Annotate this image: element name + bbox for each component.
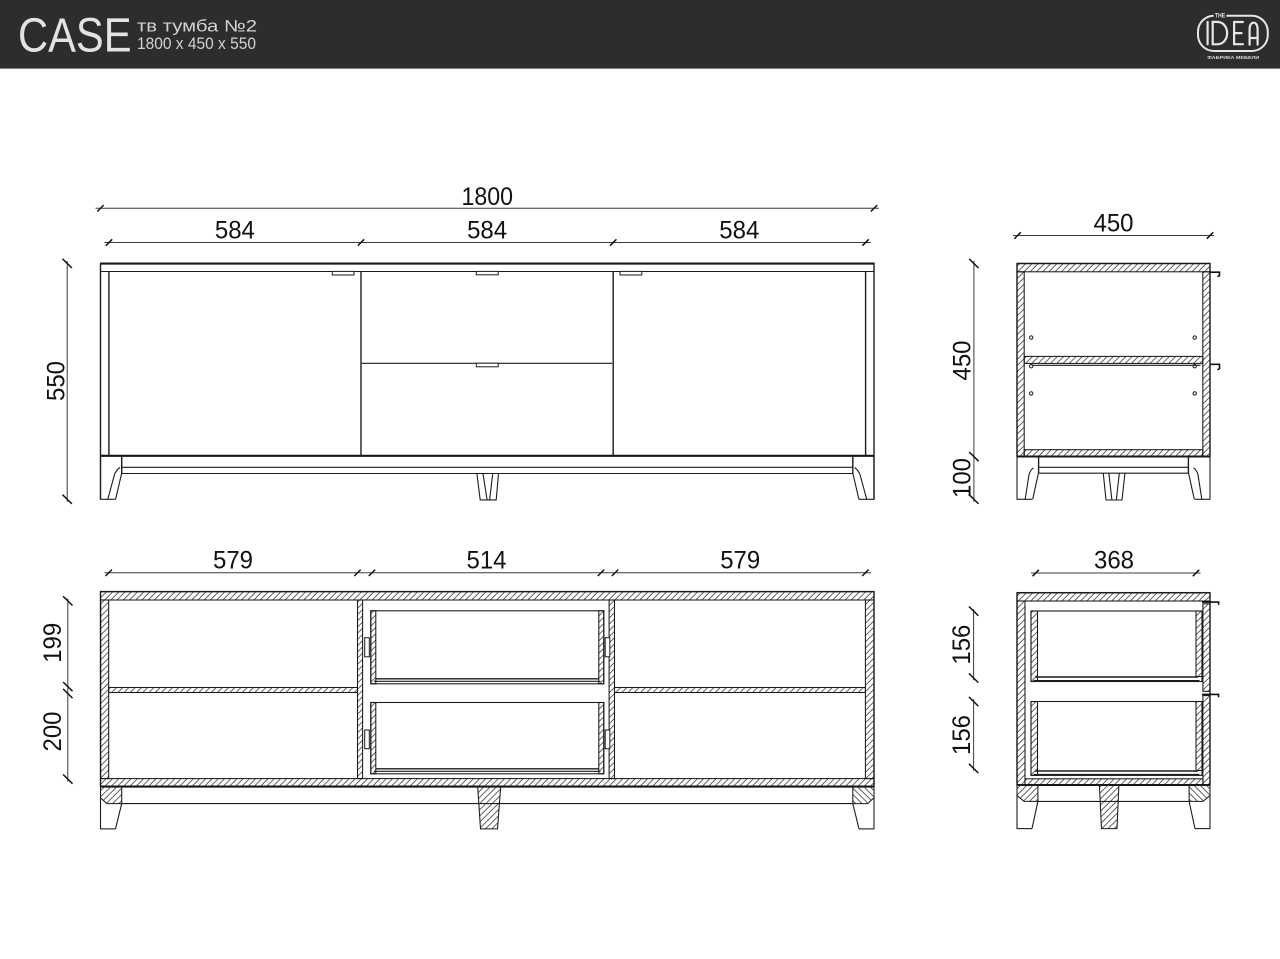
svg-text:514: 514 <box>467 546 507 574</box>
svg-text:368: 368 <box>1094 547 1134 575</box>
svg-text:100: 100 <box>948 458 976 498</box>
svg-text:579: 579 <box>720 546 760 574</box>
svg-text:1800 x 450 x 550: 1800 x 450 x 550 <box>137 35 256 53</box>
svg-text:199: 199 <box>39 623 67 663</box>
svg-text:450: 450 <box>1094 210 1134 238</box>
svg-text:156: 156 <box>948 625 976 665</box>
svg-text:200: 200 <box>39 712 67 752</box>
svg-text:THE: THE <box>1215 13 1226 20</box>
svg-text:584: 584 <box>719 216 759 244</box>
svg-text:584: 584 <box>467 216 507 244</box>
svg-text:тв тумба №2: тв тумба №2 <box>137 18 257 36</box>
svg-text:550: 550 <box>42 361 70 401</box>
svg-text:579: 579 <box>213 546 253 574</box>
svg-text:ФАБРИКА МЕБЕЛИ: ФАБРИКА МЕБЕЛИ <box>1207 55 1260 61</box>
svg-text:156: 156 <box>948 715 976 755</box>
svg-text:1800: 1800 <box>462 183 514 211</box>
svg-text:450: 450 <box>948 341 976 381</box>
svg-text:584: 584 <box>215 216 255 244</box>
svg-text:CASE: CASE <box>18 8 132 62</box>
